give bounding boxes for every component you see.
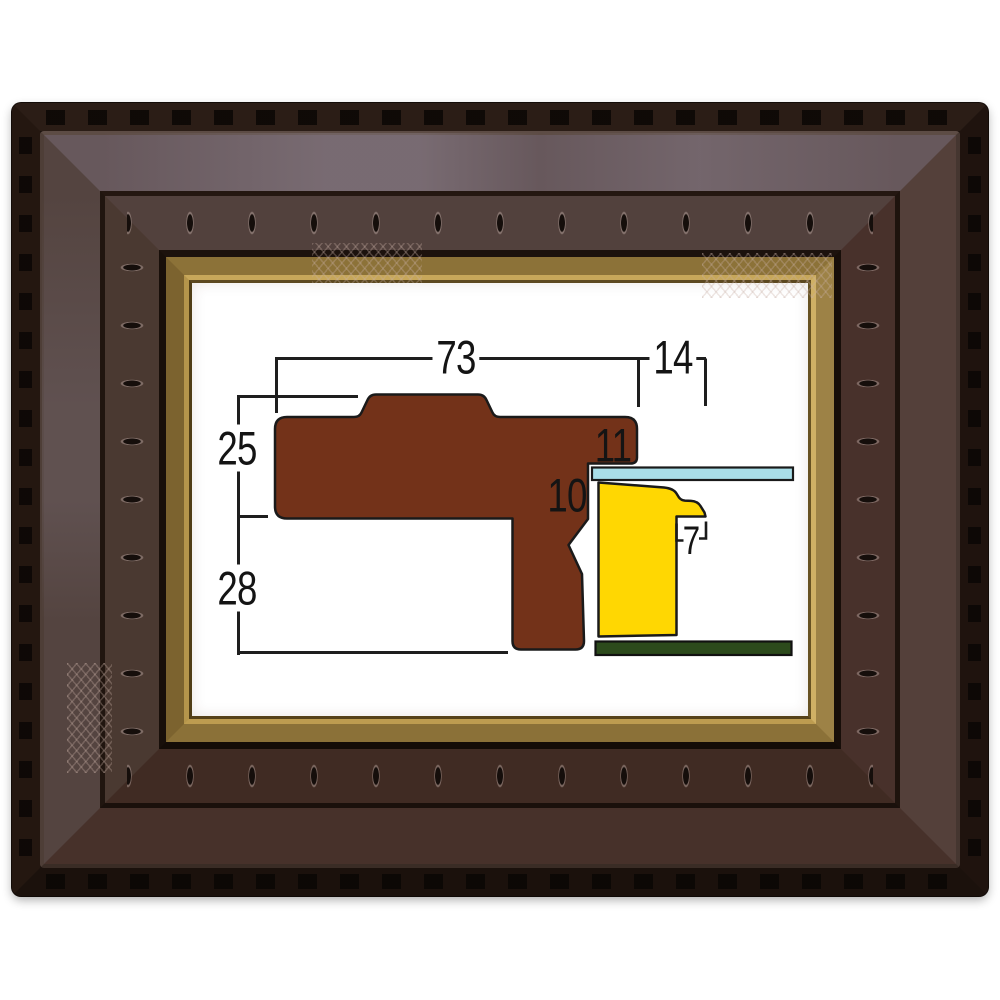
cross-section-diagram: 73 14 25 28 11 10 7	[0, 0, 1000, 1000]
dim-label-total-width: 73	[432, 334, 479, 381]
moulding-profile-shape	[275, 395, 637, 650]
product-image: 73 14 25 28 11 10 7	[0, 0, 1000, 1000]
dim-label-step-depth: 10	[547, 472, 586, 519]
dim-label-lower-height: 28	[213, 565, 260, 612]
dim-label-extension-width: 14	[649, 334, 696, 381]
backing-board-strip	[596, 642, 792, 656]
dim-label-lip-width: 7	[683, 521, 700, 561]
dim-label-upper-height: 25	[213, 425, 260, 472]
cross-section-svg	[0, 0, 1000, 1000]
dim-label-rabbet-depth: 11	[595, 422, 632, 469]
